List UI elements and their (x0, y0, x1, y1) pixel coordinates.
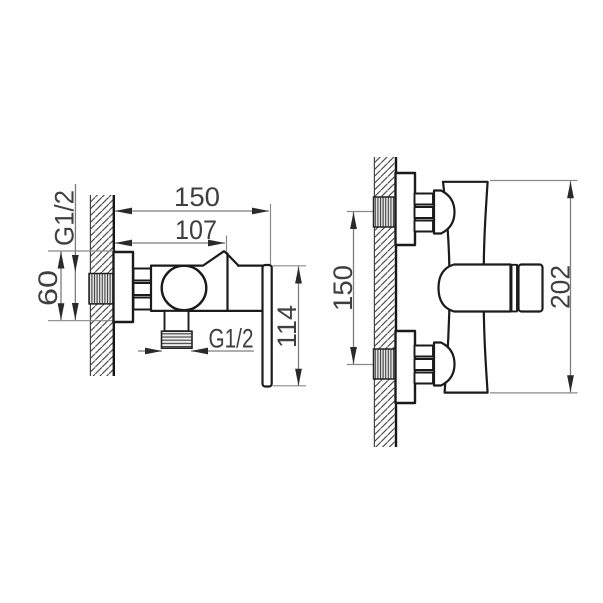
lever-handle (263, 265, 272, 387)
dim-label-flange-height: 60 (33, 270, 63, 306)
side-view: 150 107 G1/2 60 (33, 182, 306, 387)
wall-flange (396, 173, 416, 245)
nut-segment (134, 298, 152, 310)
arrowhead (58, 252, 65, 269)
nut-segment (415, 346, 434, 357)
dim-body-depth: 107 (115, 215, 227, 252)
front-view: 150 202 (328, 157, 578, 447)
dim-handle-height: 114 (272, 266, 306, 386)
wall-flange (114, 252, 134, 322)
wall-thread (89, 274, 114, 304)
arrowhead (350, 347, 357, 364)
handle-band (512, 265, 518, 312)
nut-segment (415, 359, 434, 370)
nut-segment (415, 207, 434, 218)
cartridge-cap (162, 266, 207, 311)
dim-label-connection-spacing: 150 (328, 265, 358, 311)
handle-end-cap (519, 265, 543, 312)
technical-drawing-page: 150 107 G1/2 60 (0, 0, 603, 603)
faucet-dimension-drawing: 150 107 G1/2 60 (0, 0, 603, 603)
dim-connection-spacing: 150 (328, 212, 358, 364)
wall-thread (374, 197, 397, 227)
nut-segment (415, 194, 434, 205)
nut-segment (415, 221, 434, 232)
dim-outlet-thread: G1/2 (138, 324, 254, 355)
wall-flange (396, 331, 416, 403)
dim-flange-height: 60 (33, 252, 64, 321)
arrowhead (252, 208, 269, 215)
nut-segment (415, 373, 434, 384)
outlet-thread (162, 331, 193, 348)
arrowhead (295, 267, 302, 284)
outlet-collar (165, 311, 189, 331)
arrowhead (350, 212, 357, 229)
lever-handle-front (439, 265, 543, 312)
handle-grip (439, 265, 511, 312)
wall-thread (374, 349, 397, 379)
dim-label-total-depth: 150 (174, 182, 220, 212)
nut-segment (134, 269, 152, 281)
dim-label-outlet-thread: G1/2 (209, 324, 254, 354)
arrowhead (72, 255, 79, 272)
arrowhead (145, 348, 162, 355)
dim-label-total-height: 202 (546, 265, 576, 309)
dim-label-wall-thread: G1/2 (50, 190, 80, 246)
nut-segment (134, 283, 152, 295)
arrowhead (567, 181, 574, 198)
connection-nut (134, 269, 152, 310)
arrowhead (115, 240, 132, 247)
dim-label-handle-height: 114 (272, 305, 302, 348)
arrowhead (72, 303, 79, 320)
arrowhead (567, 375, 574, 392)
dim-label-body-depth: 107 (175, 215, 217, 245)
arrowhead (295, 369, 302, 386)
arrowhead (115, 208, 132, 215)
arrowhead (191, 348, 208, 355)
